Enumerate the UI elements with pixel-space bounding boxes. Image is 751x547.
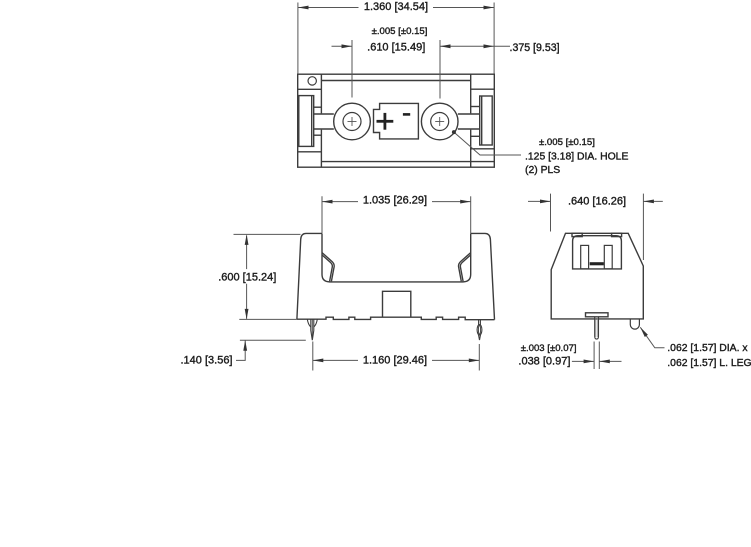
svg-text:±.005 [±0.15]: ±.005 [±0.15] [372,26,428,37]
svg-text:(2) PLS: (2) PLS [525,165,560,176]
svg-text:.062 [1.57] DIA. x: .062 [1.57] DIA. x [667,343,748,354]
svg-text:.640 [16.26]: .640 [16.26] [568,196,626,208]
svg-text:.375 [9.53]: .375 [9.53] [510,42,560,54]
svg-text:.125 [3.18] DIA. HOLE: .125 [3.18] DIA. HOLE [525,151,628,162]
svg-text:±.003 [±0.07]: ±.003 [±0.07] [521,343,577,354]
svg-text:±.005 [±0.15]: ±.005 [±0.15] [539,137,595,148]
svg-text:.062 [1.57] L. LEG: .062 [1.57] L. LEG [667,358,751,369]
svg-text:1.035 [26.29]: 1.035 [26.29] [363,195,427,207]
svg-text:.610 [15.49]: .610 [15.49] [367,42,425,54]
svg-text:.038 [0.97]: .038 [0.97] [518,355,570,367]
svg-text:1.160 [29.46]: 1.160 [29.46] [363,354,427,366]
svg-text:.600 [15.24]: .600 [15.24] [218,271,276,283]
svg-text:1.360 [34.54]: 1.360 [34.54] [364,1,428,13]
svg-text:.140 [3.56]: .140 [3.56] [181,354,233,366]
